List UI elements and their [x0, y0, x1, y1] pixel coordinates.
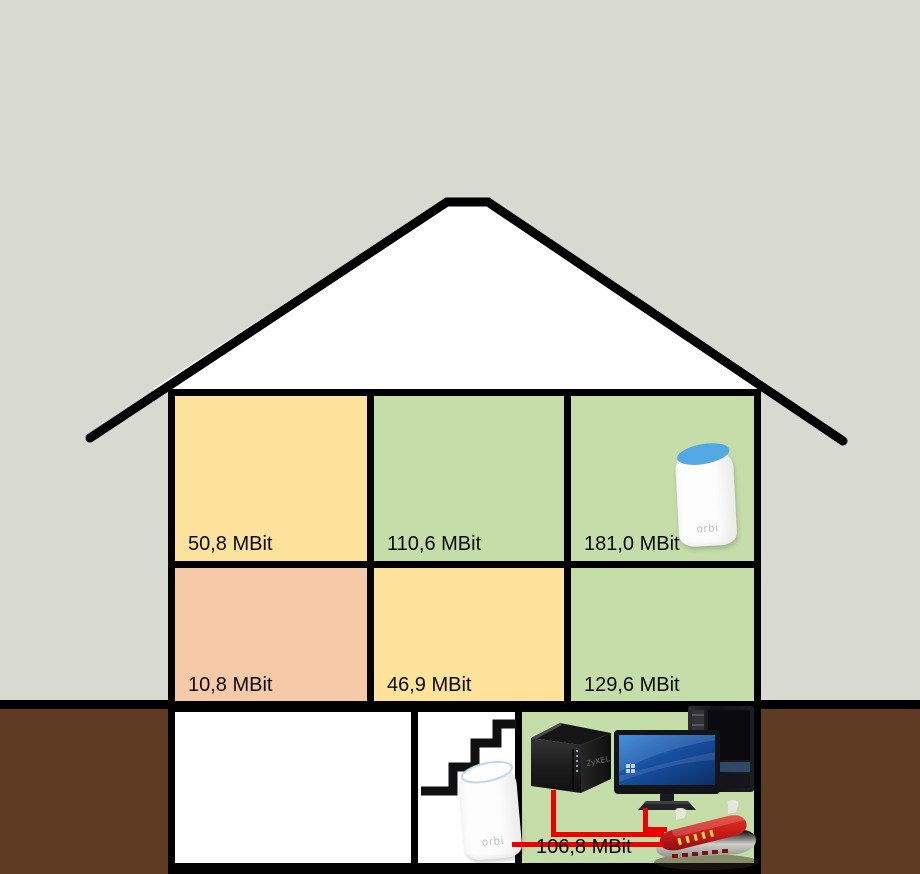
fritzbox-router-icon [650, 798, 762, 872]
link-speed-label: 106,8 MBit [536, 836, 632, 859]
speed-label: 110,6 MBit [387, 533, 481, 556]
room-middle-middle: 46,9 MBit [374, 568, 564, 701]
router-fin-left [676, 808, 687, 820]
diagram-canvas: 50,8 MBit 110,6 MBit 181,0 MBit 10,8 MBi… [0, 0, 920, 874]
speed-label: 129,6 MBit [584, 674, 680, 697]
speed-label: 50,8 MBit [188, 533, 272, 556]
room-upper-middle: 110,6 MBit [374, 396, 564, 561]
orbi-satellite-icon: orbi [674, 446, 737, 548]
lan-line-pc-horizontal [643, 827, 667, 832]
room-middle-right: 129,6 MBit [571, 568, 754, 701]
orbi-brand-label: orbi [678, 521, 737, 536]
nas-icon: ZyXEL [524, 712, 616, 800]
speed-label: 46,9 MBit [387, 674, 471, 697]
router-fin-right [728, 800, 739, 814]
room-middle-left: 10,8 MBit [175, 568, 367, 701]
room-upper-left: 50,8 MBit [175, 396, 367, 561]
room-basement-left [175, 712, 411, 863]
lan-line-nas-vertical [551, 790, 556, 837]
attic-gable [153, 199, 775, 389]
speed-label: 181,0 MBit [584, 533, 680, 556]
speed-label: 10,8 MBit [188, 674, 272, 697]
